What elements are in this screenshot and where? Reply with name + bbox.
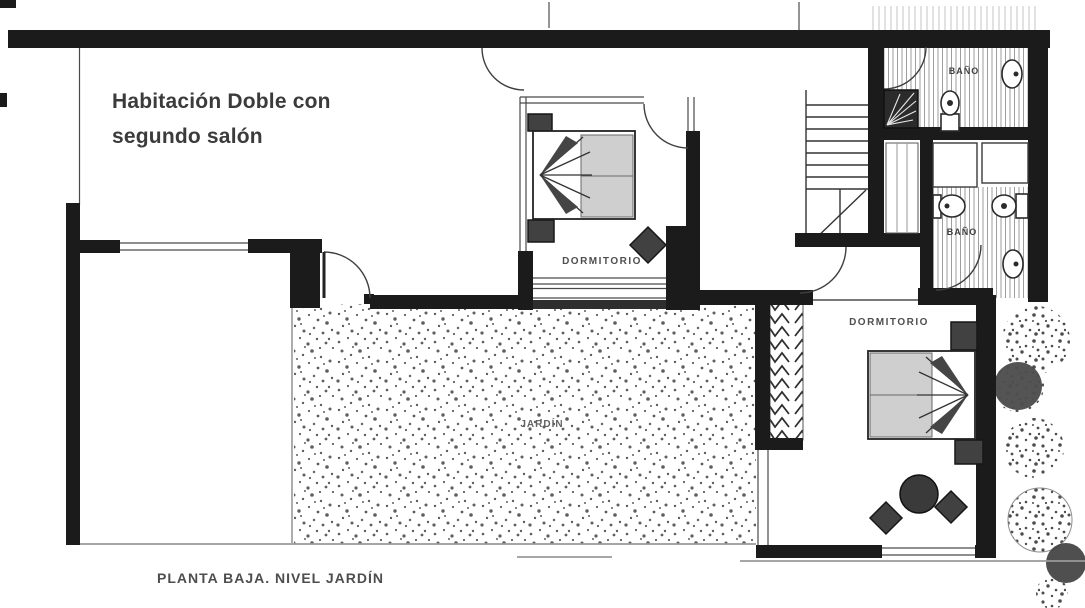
toilet-base	[941, 114, 959, 131]
door-arc-entrance	[482, 48, 524, 90]
plants	[992, 306, 1085, 608]
floor-plan: Habitación Doble con segundo salón DORMI…	[0, 0, 1085, 608]
shower-stall	[933, 143, 977, 187]
wall-left	[66, 203, 80, 545]
table-icon	[900, 475, 938, 513]
wall-right	[1028, 30, 1048, 302]
stool-icon	[935, 491, 967, 523]
door-arc-bedroom1	[644, 104, 688, 148]
sink-icon	[939, 195, 965, 217]
stool-icon	[870, 502, 902, 534]
closet-stall	[982, 143, 1028, 183]
plan-caption: PLANTA BAJA. NIVEL JARDÍN	[157, 570, 384, 586]
sink-icon	[1002, 60, 1022, 88]
sink-icon	[1003, 250, 1023, 278]
title-line1: Habitación Doble con	[112, 84, 331, 119]
nightstand	[955, 440, 983, 464]
bedroom1-furniture	[528, 114, 666, 263]
door-arc-garden	[324, 252, 370, 298]
nightstand	[951, 322, 977, 350]
annotation-title: Habitación Doble con segundo salón	[112, 84, 331, 154]
nightstand	[528, 220, 554, 242]
door-arc-hall	[800, 247, 846, 293]
bedroom2-furniture	[868, 322, 983, 534]
bedroom2-label: DORMITORIO	[824, 317, 954, 328]
bath2-label: BAÑO	[930, 227, 994, 237]
garden-label: JARDÍN	[500, 419, 584, 430]
nightstand	[528, 114, 552, 131]
louver-hatch	[770, 302, 803, 440]
upper-deck-stripes	[872, 6, 1040, 30]
wardrobe	[886, 143, 918, 233]
bedroom1-label: DORMITORIO	[537, 256, 667, 267]
bath1-label: BAÑO	[932, 66, 996, 76]
wall-top	[8, 30, 1050, 48]
title-line2: segundo salón	[112, 119, 331, 154]
stairs	[806, 90, 868, 245]
